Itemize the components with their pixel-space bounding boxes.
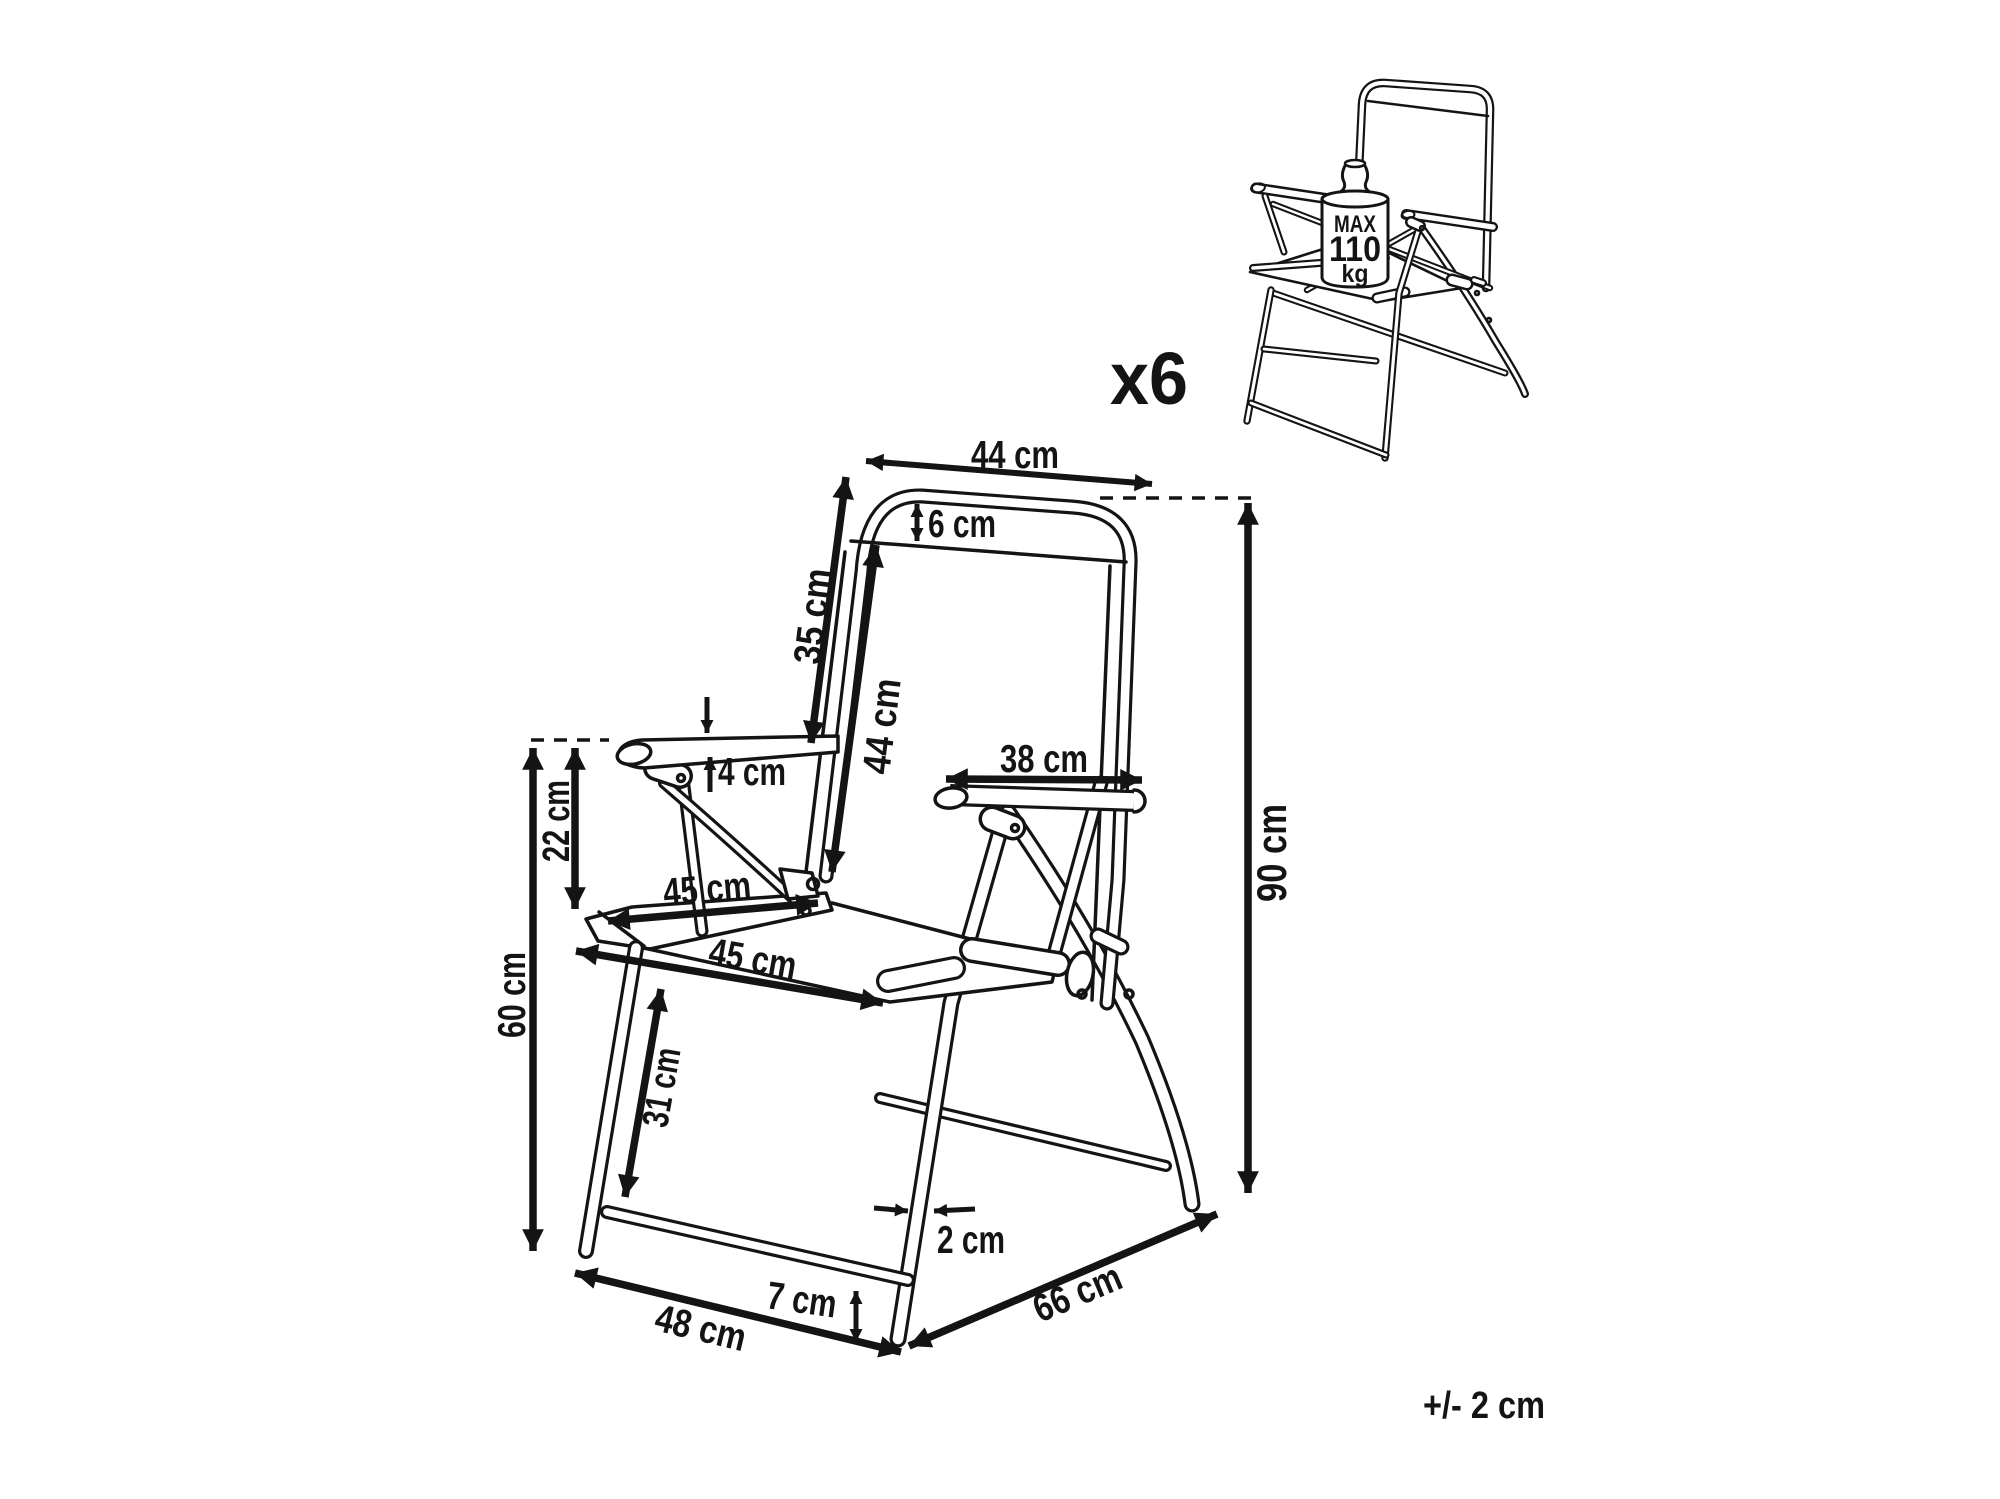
svg-text:44 cm: 44 cm [971, 434, 1059, 477]
svg-text:x6: x6 [1110, 337, 1188, 420]
svg-text:90 cm: 90 cm [1248, 804, 1295, 902]
svg-text:4 cm: 4 cm [718, 751, 786, 794]
svg-text:kg: kg [1342, 260, 1369, 288]
svg-text:+/- 2 cm: +/- 2 cm [1423, 1385, 1545, 1427]
svg-text:38 cm: 38 cm [1000, 738, 1088, 781]
svg-text:6 cm: 6 cm [928, 503, 996, 546]
svg-text:45 cm: 45 cm [661, 864, 752, 915]
svg-text:2 cm: 2 cm [937, 1219, 1005, 1262]
svg-text:60 cm: 60 cm [491, 952, 534, 1038]
svg-text:22 cm: 22 cm [536, 780, 578, 862]
